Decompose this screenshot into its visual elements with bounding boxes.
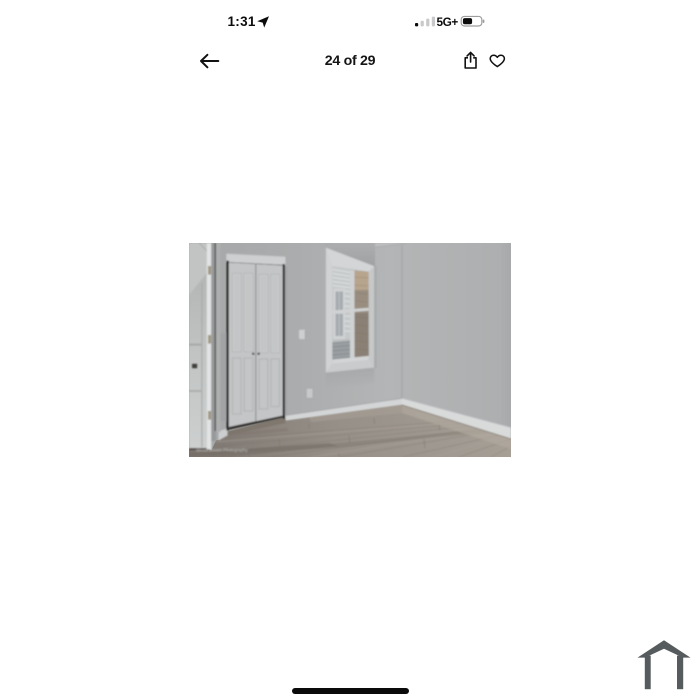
svg-text:Illinois Dream Photography: Illinois Dream Photography xyxy=(196,448,248,453)
